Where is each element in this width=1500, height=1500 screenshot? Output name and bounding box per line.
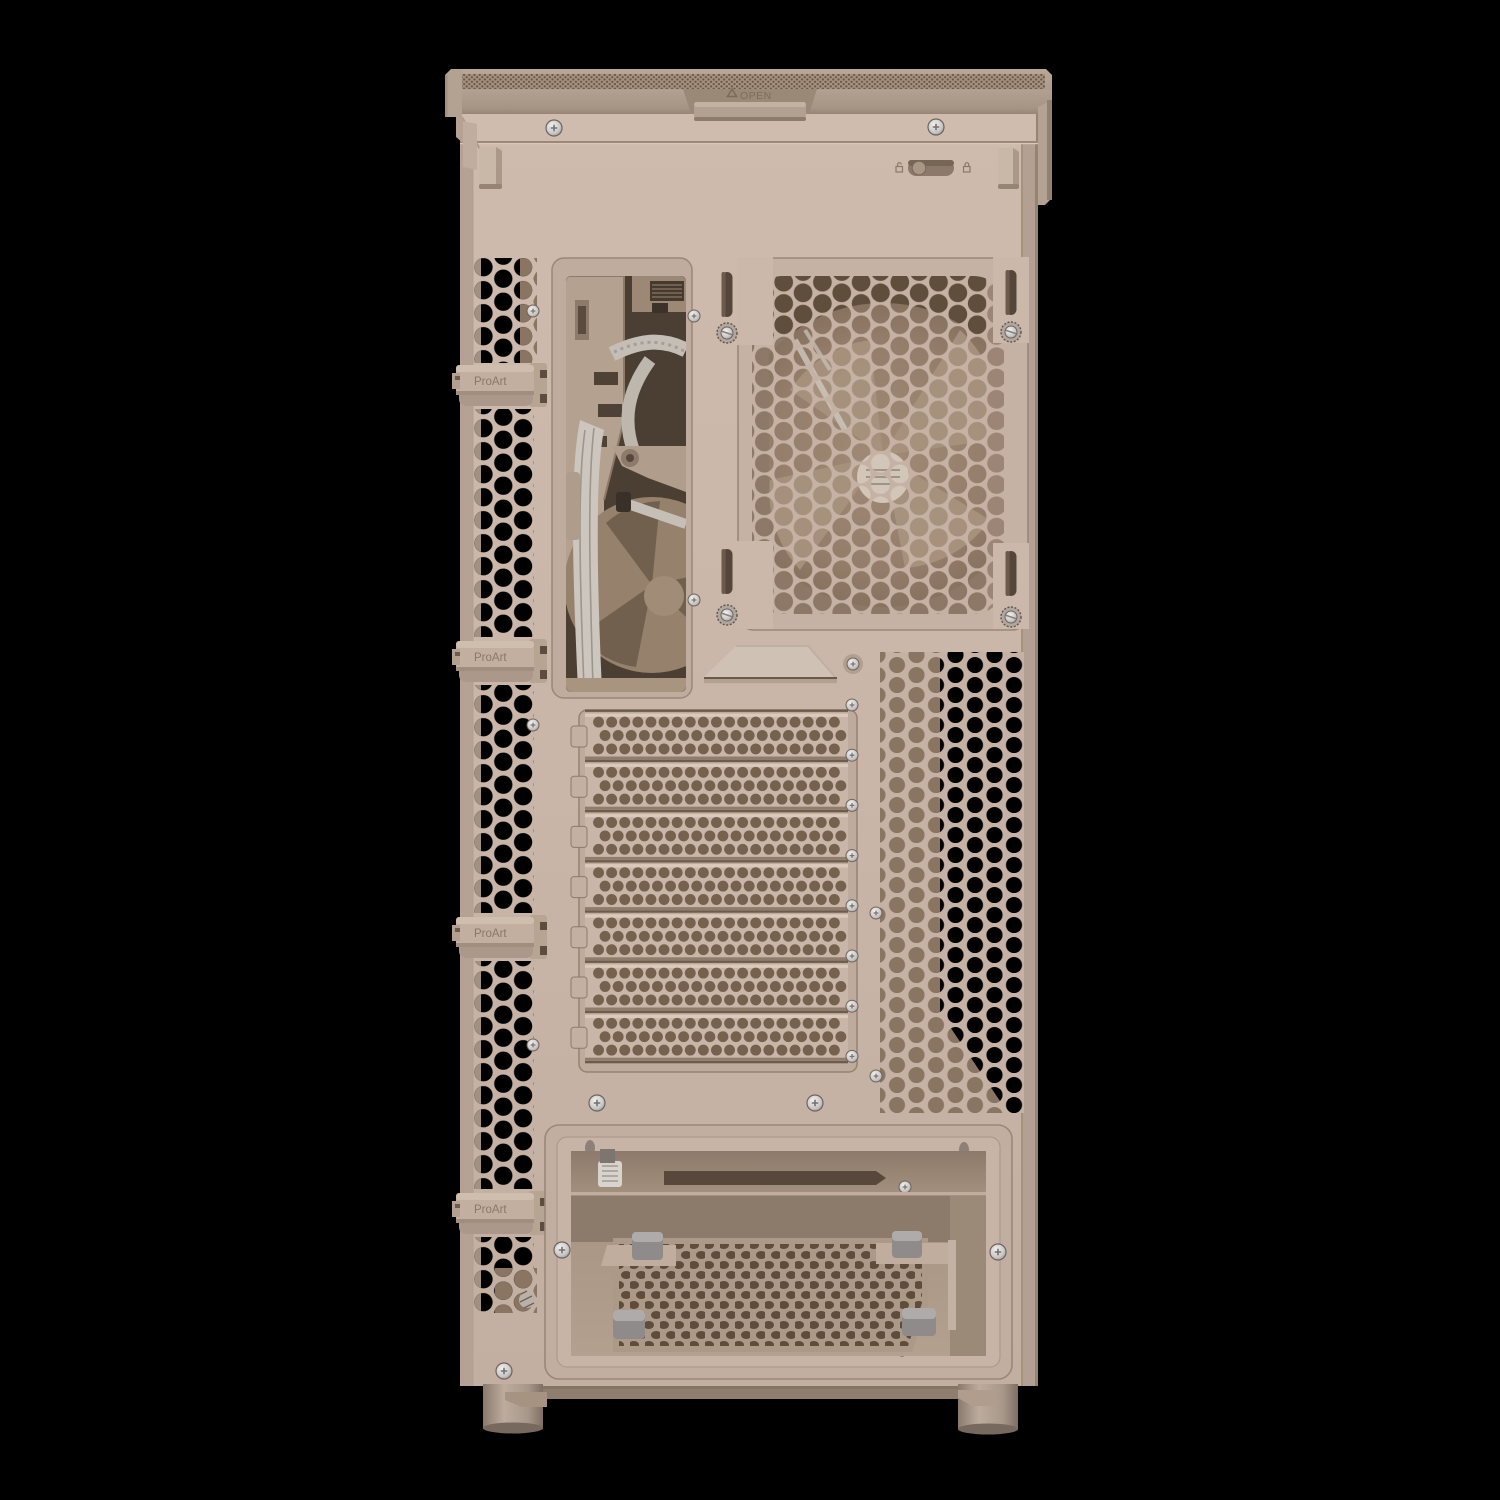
svg-text:ProArt: ProArt [474,652,507,664]
svg-text:ProArt: ProArt [474,376,507,388]
svg-text:OPEN: OPEN [740,90,772,102]
svg-text:ProArt: ProArt [474,928,507,940]
svg-text:ProArt: ProArt [474,1204,507,1216]
